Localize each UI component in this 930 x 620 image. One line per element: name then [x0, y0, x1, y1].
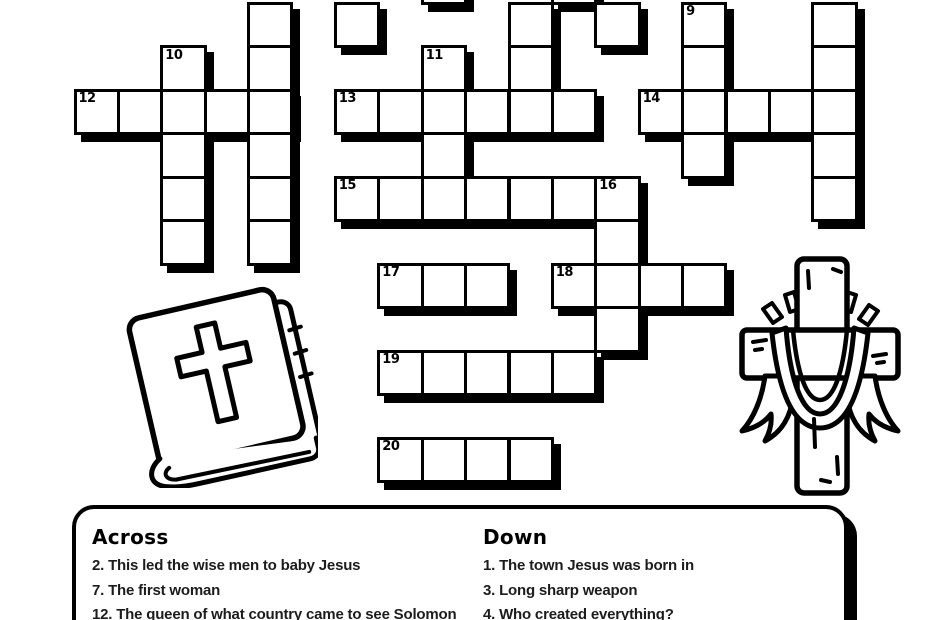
crossword-cell[interactable]: [247, 2, 293, 49]
crossword-cell[interactable]: [421, 89, 467, 136]
clue-number: 16: [599, 179, 616, 193]
crossword-cell[interactable]: [334, 2, 380, 49]
crossword-cell[interactable]: [811, 132, 857, 179]
crossword-cell[interactable]: [421, 0, 467, 5]
crossword-cell[interactable]: [551, 0, 597, 5]
crossword-cell[interactable]: [160, 176, 206, 223]
across-heading: Across: [92, 525, 467, 549]
crossword-cell[interactable]: [681, 89, 727, 136]
crossword-cell[interactable]: [421, 350, 467, 397]
crossword-cell[interactable]: [421, 132, 467, 179]
clue-number: 9: [686, 5, 695, 19]
crossword-cell[interactable]: [421, 437, 467, 484]
clue-number: 17: [382, 266, 399, 280]
crossword-cell[interactable]: [681, 263, 727, 310]
clue-item: 7. The first woman: [92, 579, 467, 604]
down-clue-list: 1. The town Jesus was born in3. Long sha…: [483, 554, 828, 620]
crossword-cell[interactable]: [508, 350, 554, 397]
across-clue-list: 2. This led the wise men to baby Jesus7.…: [92, 554, 467, 620]
clue-number: 19: [382, 353, 399, 367]
crossword-cell[interactable]: [160, 219, 206, 266]
crossword-cell[interactable]: [247, 176, 293, 223]
crossword-cell[interactable]: [160, 89, 206, 136]
clue-number: 10: [165, 49, 182, 63]
clues-across: Across 2. This led the wise men to baby …: [92, 525, 467, 620]
crossword-cell[interactable]: [811, 176, 857, 223]
clues-down: Down 1. The town Jesus was born in3. Lon…: [483, 525, 828, 620]
crossword-cell[interactable]: [594, 2, 640, 49]
crossword-cell[interactable]: [638, 263, 684, 310]
crossword-cell[interactable]: [247, 89, 293, 136]
clue-number: 12: [79, 92, 96, 106]
crossword-cell[interactable]: [551, 176, 597, 223]
crossword-cell[interactable]: [247, 219, 293, 266]
clue-number: 11: [426, 49, 443, 63]
crossword-cell[interactable]: [811, 45, 857, 92]
crossword-cell[interactable]: [508, 437, 554, 484]
crossword-cell[interactable]: [464, 437, 510, 484]
crossword-cell[interactable]: [811, 89, 857, 136]
crossword-cell[interactable]: [594, 263, 640, 310]
crossword-cell[interactable]: [377, 176, 423, 223]
crossword-cell[interactable]: [508, 45, 554, 92]
crossword-worksheet-page: 91011121314151617181920: [0, 0, 930, 620]
crossword-cell[interactable]: [681, 132, 727, 179]
crossword-cell[interactable]: [508, 176, 554, 223]
crossword-cell[interactable]: [421, 176, 467, 223]
clue-item: 12. The queen of what country came to se…: [92, 603, 467, 620]
clue-item: 3. Long sharp weapon: [483, 579, 828, 604]
crossword-cell[interactable]: [681, 45, 727, 92]
crossword-cell[interactable]: [464, 350, 510, 397]
crossword-cell[interactable]: [508, 2, 554, 49]
down-heading: Down: [483, 525, 828, 549]
crossword-cell[interactable]: [204, 89, 250, 136]
crossword-cell[interactable]: [811, 2, 857, 49]
clue-number: 14: [643, 92, 660, 106]
clue-item: 2. This led the wise men to baby Jesus: [92, 554, 467, 579]
clue-number: 15: [339, 179, 356, 193]
clue-panel: Across 2. This led the wise men to baby …: [72, 505, 848, 620]
crossword-cell[interactable]: [464, 263, 510, 310]
crossword-cell[interactable]: [594, 219, 640, 266]
crossword-cell[interactable]: [464, 89, 510, 136]
crossword-cell[interactable]: [117, 89, 163, 136]
crossword-cell[interactable]: [421, 263, 467, 310]
crossword-cell[interactable]: [247, 132, 293, 179]
clue-number: 18: [556, 266, 573, 280]
clue-number: 13: [339, 92, 356, 106]
cross-with-cloth-icon: [735, 251, 905, 505]
crossword-cell[interactable]: [247, 45, 293, 92]
crossword-cell[interactable]: [160, 132, 206, 179]
crossword-cell[interactable]: [725, 89, 771, 136]
clue-item: 4. Who created everything?: [483, 603, 828, 620]
bible-book-icon: [116, 284, 318, 488]
crossword-cell[interactable]: [594, 306, 640, 353]
clue-item: 1. The town Jesus was born in: [483, 554, 828, 579]
crossword-cell[interactable]: [464, 176, 510, 223]
crossword-cell[interactable]: [508, 89, 554, 136]
crossword-cell[interactable]: [551, 350, 597, 397]
crossword-cell[interactable]: [377, 89, 423, 136]
crossword-cell[interactable]: [768, 89, 814, 136]
crossword-cell[interactable]: [551, 89, 597, 136]
clue-number: 20: [382, 440, 399, 454]
